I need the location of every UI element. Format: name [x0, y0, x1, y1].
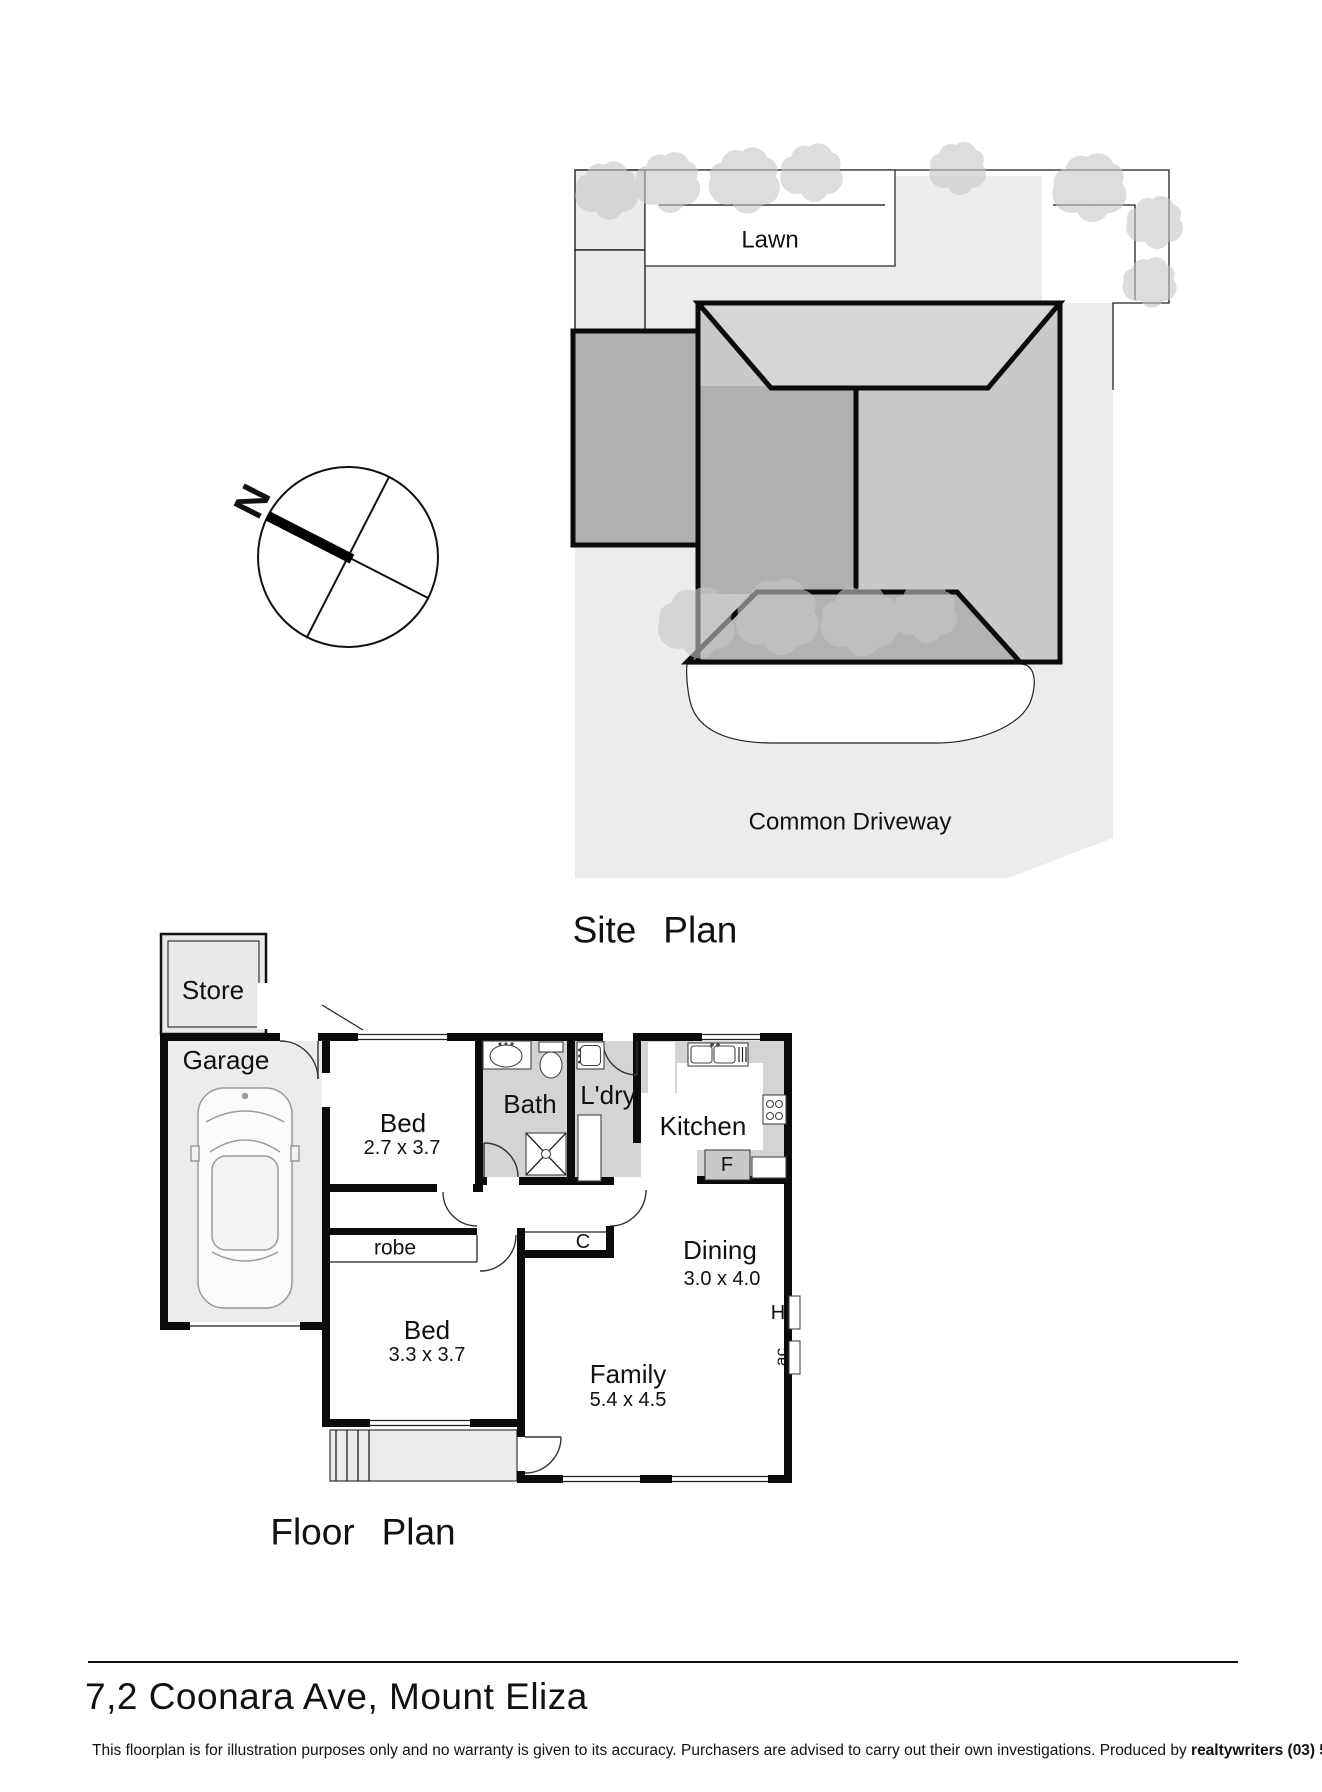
disclaimer-body: This floorplan is for illustration purpo… [92, 1742, 1191, 1759]
garden-bed [687, 664, 1035, 743]
garage-label: Garage [183, 1045, 270, 1075]
bed2-dims: 3.3 x 3.7 [389, 1344, 466, 1366]
kitchen-label: Kitchen [660, 1111, 747, 1141]
site-plan: Lawn Common Driveway Site Plan N [224, 142, 1183, 951]
family-label: Family [590, 1359, 667, 1389]
porch [330, 1430, 517, 1481]
bed1-dims: 2.7 x 3.7 [364, 1137, 441, 1159]
kitchen-bench-gap [648, 1042, 675, 1093]
basin [490, 1045, 522, 1067]
floor-plan-title: Floor Plan [270, 1512, 455, 1553]
entry-path-edge [322, 1005, 363, 1030]
robe-label: robe [374, 1237, 416, 1260]
fridge-marker: F [721, 1154, 733, 1176]
footer-divider [88, 1661, 1238, 1663]
hot-water-unit [789, 1296, 800, 1329]
dining-dims: 3.0 x 4.0 [684, 1268, 761, 1290]
store-opening [257, 983, 268, 1029]
roof-left-plane [700, 386, 856, 594]
compass: N [224, 467, 438, 647]
aircon-unit [789, 1341, 800, 1374]
compass-north-arrow [268, 516, 352, 559]
bed2-label: Bed [404, 1315, 450, 1345]
plan-canvas: Lawn Common Driveway Site Plan N [0, 0, 1322, 1792]
dining-label: Dining [683, 1235, 757, 1265]
house-left-wing [573, 331, 698, 545]
store-label: Store [182, 975, 244, 1005]
dishwasher [752, 1157, 786, 1178]
aircon-marker: ac [772, 1348, 791, 1366]
family-dims: 5.4 x 4.5 [590, 1389, 667, 1411]
property-address: 7,2 Coonara Ave, Mount Eliza [85, 1676, 588, 1718]
bath-label: Bath [503, 1089, 557, 1119]
driveway-label: Common Driveway [749, 809, 952, 836]
side-court-lower [575, 250, 645, 330]
laundry-bench [578, 1115, 601, 1181]
cooktop [763, 1095, 786, 1124]
toilet-bowl [540, 1052, 562, 1078]
hot-water-marker: H [771, 1302, 785, 1324]
shower-drain [542, 1150, 551, 1159]
floor-plan: Store Garage Bed 2.7 x 3.7 Bath L'dry Ki… [160, 934, 800, 1553]
disclaimer-text: This floorplan is for illustration purpo… [92, 1742, 1322, 1760]
floorplan-page: Lawn Common Driveway Site Plan N [0, 0, 1322, 1792]
lawn-label: Lawn [741, 227, 798, 254]
compass-south-line [348, 557, 428, 598]
cupboard-marker: C [576, 1231, 590, 1253]
site-plan-title: Site Plan [573, 910, 738, 951]
car [191, 1088, 299, 1308]
producer-credit: realtywriters (03) 5970 2222 [1191, 1742, 1322, 1759]
toilet-cistern [539, 1042, 563, 1052]
laundry-label: L'dry [580, 1080, 636, 1110]
bed1-label: Bed [380, 1108, 426, 1138]
